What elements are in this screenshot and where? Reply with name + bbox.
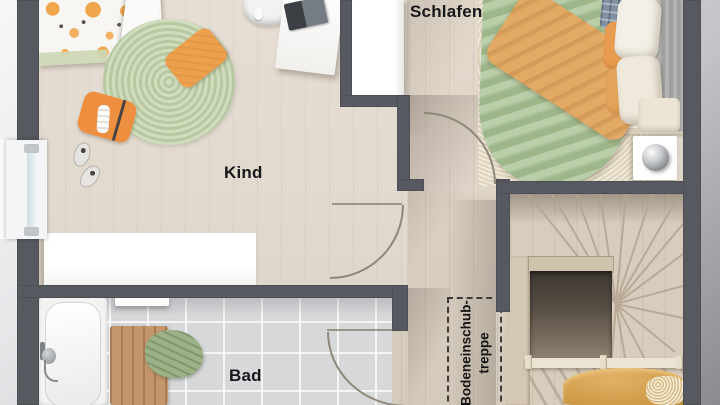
- blanket-on-stairs: [563, 368, 687, 405]
- wall-right-outer: [683, 0, 701, 405]
- attic-hatch-label: Bodeneinschub- treppe: [457, 297, 492, 405]
- floor-plan: Bodeneinschub- treppe Schlafen Kind Bad: [0, 0, 720, 405]
- ball-lamp: [642, 144, 669, 171]
- stairwell-opening: [530, 271, 612, 358]
- wall-kind-bad: [17, 285, 402, 298]
- wall-bad-east: [392, 285, 408, 331]
- railing-post-1: [525, 355, 532, 369]
- cushion-strap: [112, 100, 126, 141]
- kind-sideboard: [44, 233, 256, 289]
- bath-faucet: [38, 340, 62, 382]
- computer-mouse: [254, 8, 263, 20]
- window-clip-top: [24, 144, 39, 153]
- label-bad: Bad: [229, 366, 262, 386]
- window: [6, 140, 47, 239]
- wall-schlafen-door-stub: [397, 179, 424, 191]
- label-schlafen: Schlafen: [410, 2, 482, 22]
- slippers: [74, 142, 104, 192]
- railing-post-3: [676, 355, 683, 369]
- wall-left-upper: [17, 0, 39, 142]
- wall-stairs-west: [496, 179, 510, 312]
- attic-hatch-outline: Bodeneinschub- treppe: [447, 297, 502, 405]
- attic-hatch-label-line1: Bodeneinschub-: [457, 297, 475, 405]
- attic-hatch-label-line2: treppe: [475, 297, 493, 405]
- railing-post-2: [600, 355, 607, 369]
- shower-hose: [44, 360, 58, 382]
- window-glass: [27, 148, 36, 231]
- slipper-left: [71, 140, 94, 169]
- blanket-folded-cream: [638, 98, 680, 132]
- pillow-white-1: [613, 0, 662, 62]
- wardrobe: [352, 0, 404, 95]
- toy-on-cushion: [96, 105, 110, 134]
- wall-kind-schlafen: [340, 0, 352, 107]
- blanket-lace-edge: [646, 376, 686, 405]
- wall-hall-west: [397, 95, 410, 191]
- wall-left-lower: [17, 238, 39, 405]
- label-kind: Kind: [224, 163, 263, 183]
- window-clip-bottom: [24, 227, 39, 236]
- wall-schlafen-south: [496, 181, 684, 194]
